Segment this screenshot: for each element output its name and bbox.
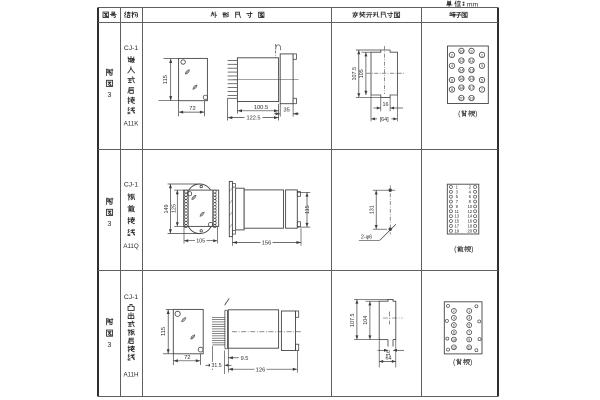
svg-text:107.5: 107.5 [350, 314, 356, 328]
svg-text:6: 6 [453, 323, 455, 327]
svg-text:19: 19 [454, 228, 459, 233]
svg-text:3: 3 [108, 342, 112, 349]
svg-text:100.5: 100.5 [254, 105, 269, 111]
svg-text:3: 3 [468, 316, 470, 320]
svg-text:122.5: 122.5 [247, 116, 261, 122]
svg-text:115: 115 [305, 205, 311, 214]
svg-text:3: 3 [108, 92, 112, 99]
svg-text:4: 4 [453, 316, 455, 320]
svg-text:149: 149 [164, 205, 170, 214]
svg-text:64: 64 [386, 356, 392, 362]
svg-text:A11H: A11H [123, 372, 138, 379]
svg-text:16: 16 [459, 76, 463, 81]
svg-text:5: 5 [481, 77, 483, 82]
svg-text:9: 9 [468, 338, 470, 342]
svg-text:1: 1 [468, 309, 470, 313]
svg-text:131: 131 [370, 205, 376, 214]
svg-text:6: 6 [451, 77, 453, 82]
svg-text:15: 15 [469, 76, 473, 81]
svg-text:18: 18 [459, 85, 463, 90]
svg-text:CJ-1: CJ-1 [124, 45, 139, 52]
svg-text:20: 20 [467, 228, 472, 233]
svg-text:5: 5 [468, 323, 470, 327]
svg-text:9: 9 [470, 48, 472, 53]
svg-text:115: 115 [161, 327, 167, 336]
svg-text:13: 13 [469, 68, 473, 73]
svg-text:): ) [471, 247, 473, 254]
svg-text:105: 105 [359, 69, 365, 78]
svg-text:12: 12 [452, 346, 456, 350]
svg-text:CJ-1: CJ-1 [124, 294, 139, 301]
svg-text:[64]: [64] [380, 117, 389, 123]
svg-text:105: 105 [196, 239, 205, 245]
svg-text:CJ-1: CJ-1 [124, 182, 139, 189]
svg-text:7: 7 [468, 331, 470, 335]
svg-text:3: 3 [481, 63, 483, 68]
svg-text:12: 12 [459, 58, 463, 63]
svg-text:115: 115 [163, 75, 169, 84]
svg-text:19: 19 [469, 96, 473, 101]
svg-text:2-φ6: 2-φ6 [361, 234, 372, 240]
svg-text:17: 17 [469, 85, 473, 90]
svg-text:11: 11 [467, 346, 471, 350]
svg-text:16: 16 [383, 102, 389, 108]
svg-text:): ) [470, 359, 472, 366]
svg-text:A11Q: A11Q [123, 243, 139, 250]
svg-text:2: 2 [453, 309, 455, 313]
svg-text:3: 3 [108, 221, 112, 228]
svg-text:8: 8 [451, 87, 453, 92]
svg-text:72: 72 [184, 355, 190, 361]
svg-text:104: 104 [363, 316, 369, 325]
svg-text:11: 11 [469, 58, 473, 63]
svg-text:72: 72 [189, 106, 195, 112]
svg-text:126: 126 [256, 367, 266, 373]
svg-text:125: 125 [171, 204, 177, 213]
svg-text:107.5: 107.5 [352, 67, 358, 81]
svg-text:): ) [475, 111, 477, 118]
svg-text:9.5: 9.5 [241, 356, 249, 362]
svg-text:8: 8 [453, 331, 455, 335]
svg-text:7: 7 [481, 87, 483, 92]
svg-text:A11K: A11K [124, 121, 140, 128]
svg-text:1: 1 [481, 52, 483, 57]
svg-text:10: 10 [452, 338, 456, 342]
svg-text:31.5: 31.5 [212, 363, 222, 369]
svg-text:156: 156 [262, 241, 272, 247]
svg-text:35: 35 [283, 108, 289, 114]
svg-text:mm: mm [467, 1, 479, 8]
svg-text:2: 2 [451, 52, 453, 57]
